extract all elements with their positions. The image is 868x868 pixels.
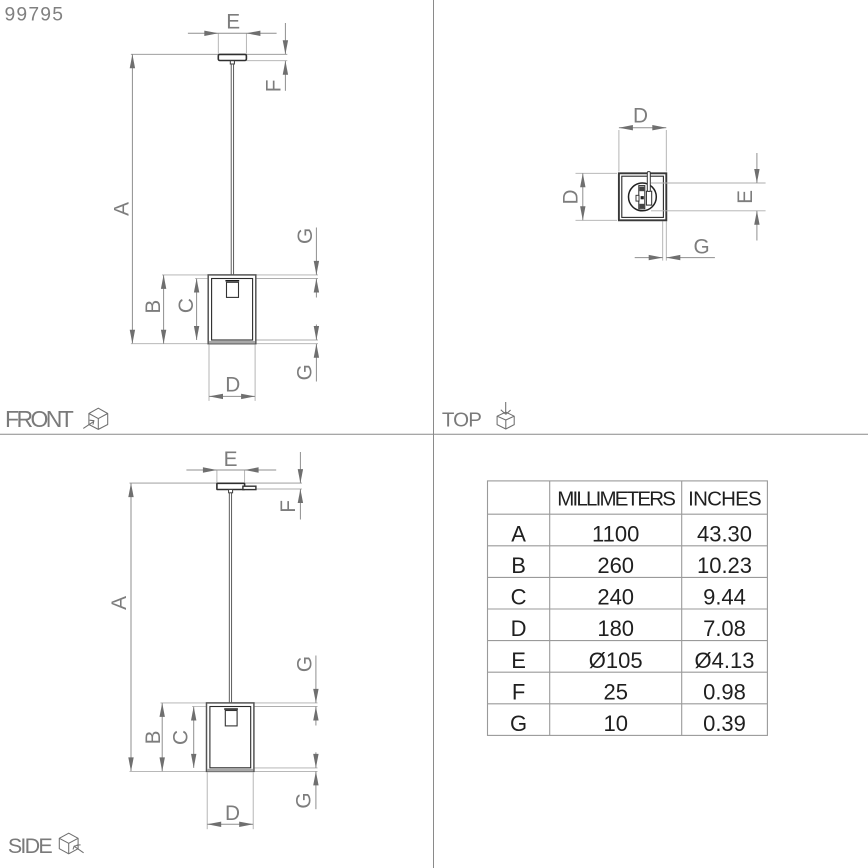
svg-text:240: 240 — [597, 585, 634, 610]
svg-text:E: E — [511, 648, 526, 673]
svg-text:99795: 99795 — [5, 5, 65, 26]
svg-text:G: G — [510, 711, 527, 736]
svg-text:Ø105: Ø105 — [589, 648, 643, 673]
svg-text:B: B — [142, 300, 165, 314]
svg-text:TOP: TOP — [442, 409, 481, 432]
svg-text:C: C — [511, 585, 527, 610]
svg-text:10.23: 10.23 — [697, 553, 752, 578]
svg-text:D: D — [511, 616, 527, 641]
svg-text:G: G — [293, 656, 316, 672]
svg-text:D: D — [633, 104, 648, 127]
svg-text:B: B — [142, 730, 165, 744]
svg-text:7.08: 7.08 — [703, 616, 746, 641]
svg-text:A: A — [108, 596, 131, 610]
svg-text:A: A — [511, 521, 526, 546]
svg-text:Ø4.13: Ø4.13 — [695, 648, 755, 673]
svg-text:10: 10 — [603, 711, 627, 736]
svg-text:INCHES: INCHES — [688, 488, 761, 511]
svg-text:E: E — [226, 10, 240, 33]
svg-text:0.98: 0.98 — [703, 679, 746, 704]
svg-text:F: F — [262, 80, 285, 93]
svg-text:43.30: 43.30 — [697, 521, 752, 546]
svg-text:180: 180 — [597, 616, 634, 641]
svg-text:SIDE: SIDE — [8, 834, 52, 858]
svg-text:E: E — [734, 190, 757, 204]
svg-text:G: G — [294, 228, 317, 244]
svg-text:E: E — [224, 448, 238, 471]
svg-text:1100: 1100 — [592, 521, 639, 546]
svg-text:MILLIMETERS: MILLIMETERS — [557, 488, 675, 511]
svg-text:B: B — [511, 553, 526, 578]
svg-text:0.39: 0.39 — [703, 711, 746, 736]
svg-text:F: F — [512, 679, 525, 704]
svg-text:260: 260 — [597, 553, 634, 578]
svg-text:D: D — [225, 802, 240, 825]
svg-text:25: 25 — [603, 679, 627, 704]
svg-text:D: D — [560, 189, 583, 204]
svg-text:C: C — [175, 298, 198, 313]
svg-text:G: G — [293, 364, 316, 380]
svg-text:9.44: 9.44 — [703, 585, 746, 610]
svg-text:FRONT: FRONT — [5, 406, 74, 432]
svg-text:G: G — [293, 792, 316, 808]
svg-text:F: F — [277, 500, 300, 513]
svg-text:D: D — [225, 374, 240, 397]
svg-text:C: C — [170, 730, 193, 745]
svg-text:G: G — [694, 235, 710, 258]
svg-text:A: A — [110, 202, 133, 216]
